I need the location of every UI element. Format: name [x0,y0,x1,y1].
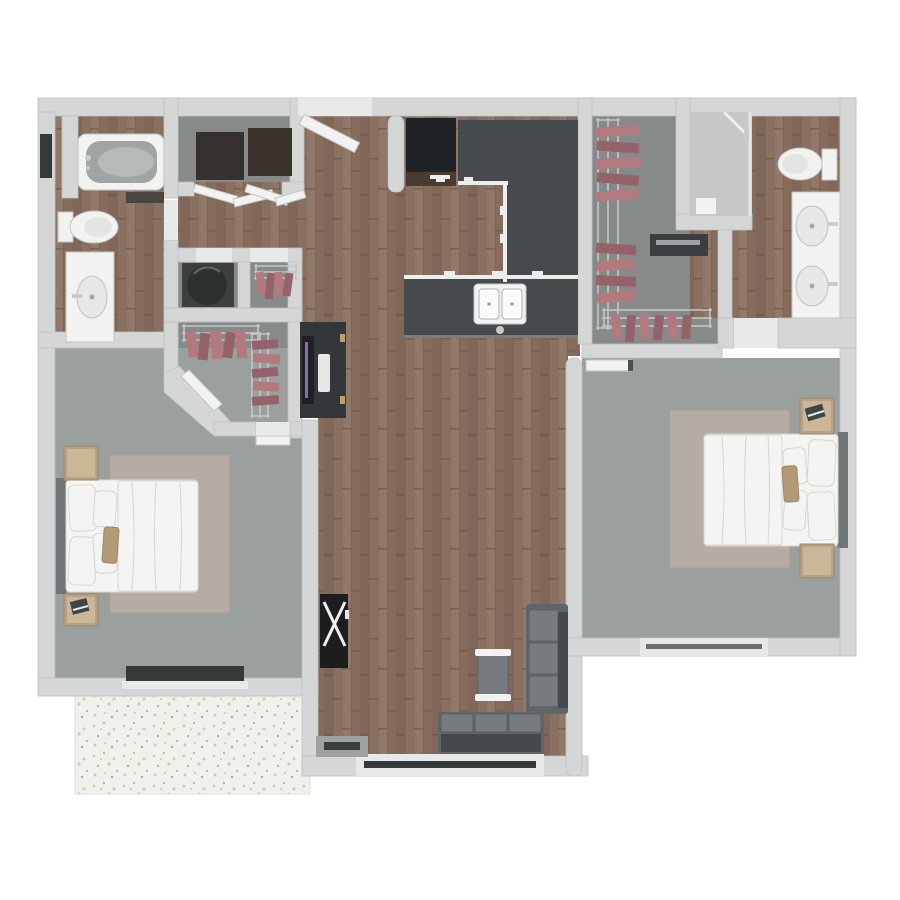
wall-bathroom2-south-a [718,318,734,348]
chaise-back-panel [558,612,568,708]
water-heater [187,265,227,305]
wall-living-east [566,358,582,776]
laundry-closet [193,128,306,207]
sofa-seat [441,734,541,752]
bed1-headboard [56,478,66,594]
dryer [248,128,292,176]
bedroom1-door-leaf[interactable] [256,436,290,445]
toilet2-tank [822,149,837,180]
kitchen-counter-right-run [506,184,578,282]
floorplan-canvas [0,0,900,900]
bathroom2-door-opening [734,318,778,348]
sofa-back-cushion [441,714,473,732]
bed1-pillow [68,484,97,531]
drain-icon [510,302,514,306]
counter-edge [503,181,507,282]
bathroom1-door-opening [164,200,178,240]
bedroom-1 [56,446,230,626]
wall-exterior-left [38,112,55,696]
island-item-icon [492,271,503,276]
shower-head-icon [744,126,749,140]
linen-closet-opening [250,248,288,262]
island-edge [404,275,578,279]
bed2-duvet [704,435,782,545]
bed2-accent-pillow [782,465,799,502]
desk-knob-icon [340,334,345,342]
bed1-pillow [68,536,97,585]
wall-closet2-south [582,344,722,358]
bathtub-faucet-icon [85,155,91,161]
sofa-back-cushion [475,714,507,732]
wall-exterior-right [840,98,856,656]
ottoman-rail [475,694,511,701]
wall-closet1-south-a [214,422,256,436]
bed2-pillow [807,491,836,540]
nightstand-top [67,449,95,477]
drain-icon [487,302,491,306]
wall-closet-divider [238,262,250,308]
island-item-icon [532,271,543,276]
door-edge [628,360,633,371]
island-faucet-icon [496,326,504,334]
counter-knob-icon [500,234,505,243]
hanging-clothes [639,314,650,341]
chaise-cushion [529,610,558,641]
bed1-accent-pillow [102,527,119,564]
sofa-back-cushion [509,714,541,732]
counter-appliance-icon [464,177,473,183]
island-item-icon [444,271,455,276]
wall-tub-alcove-west [62,116,78,198]
wall-shower-south [676,214,752,230]
wall-bathroom2-south-b [778,318,856,348]
wall-closet2-east [718,230,732,318]
wall-closets-south [164,308,302,322]
faucet-icon [828,222,838,226]
bedroom1-door-opening [256,422,290,436]
hanging-clothes [252,339,279,350]
hanging-clothes [252,395,280,406]
bathtub-drain-icon [86,166,90,170]
keyboard [318,354,330,392]
monitor-screen [305,342,308,398]
kitchen-counter-top-run [458,120,578,184]
hanging-clothes [681,315,692,340]
bathroom1-door-leaf[interactable] [126,192,164,203]
wall-bathroom2-west [676,98,690,218]
desk-knob-icon [340,396,345,404]
patio-floor [75,696,310,794]
bedroom1-window [126,666,244,681]
apartment-floorplan [0,0,900,900]
shower-bench [696,198,716,214]
hanging-clothes [596,275,636,287]
console-handle-icon [345,610,349,619]
drain-icon [810,284,815,289]
sink1-faucet-icon [72,294,82,298]
island-shadow-edge [404,335,578,338]
toilet2-lid [782,154,808,174]
bedroom2-door-leaf[interactable] [586,360,632,371]
bedroom1-window-sill [122,681,248,689]
faucet-icon [828,282,838,286]
bathtub-water-sheen [98,147,154,177]
wall-entry-stub [388,116,404,192]
wall-closet1-south-b [290,422,302,436]
nightstand-top [803,547,831,575]
chaise-cushion [529,676,558,707]
chaise-cushion [529,643,558,674]
toilet1-lid [84,217,112,237]
sink1-drain-icon [90,295,95,300]
bedroom2-window [646,644,762,649]
tufted-ottoman [478,654,508,696]
utility-closet [182,263,234,307]
wall-laundry-front-a [178,182,194,196]
washer [196,132,244,180]
dresser-slot [656,240,700,245]
wall-kitchen-closet2-divider [578,98,592,344]
drain-icon [810,224,815,229]
refrigerator [406,118,456,172]
bed1-duvet [118,481,198,591]
ottoman-rail [475,649,511,656]
bed1-pillow [93,490,117,527]
utility-closet-opening [196,248,232,262]
counter-appliance-icon [436,176,445,182]
counter-knob-icon [500,206,505,215]
wall-living-west [302,420,318,776]
hanging-clothes [253,381,280,392]
bed2-headboard [838,432,848,548]
bathroom1-wall-window [40,134,52,178]
media-console-slot [324,742,360,750]
wall-tub-alcove-east [164,98,178,198]
entry-door-opening [298,98,372,116]
living-sliding-window [364,761,536,768]
bed2-pillow [807,439,836,486]
